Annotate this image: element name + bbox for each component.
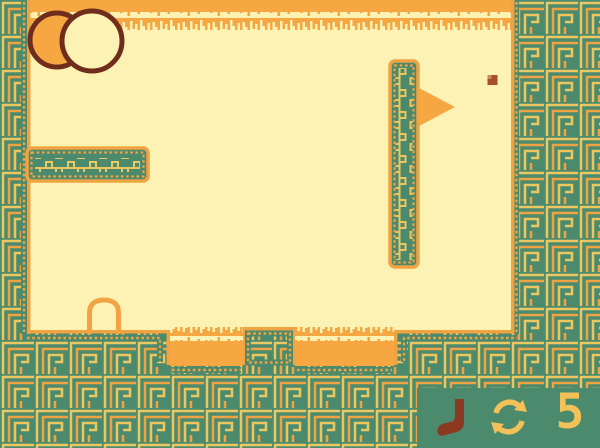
cream-circle (62, 11, 122, 71)
grass-patch-left (170, 327, 243, 366)
border-left (0, 0, 31, 448)
border-right (511, 0, 600, 390)
grass-patch-right (295, 327, 394, 366)
level-canvas[interactable] (0, 0, 600, 448)
overlapping-circles (30, 11, 122, 71)
golf-ball[interactable] (488, 75, 498, 85)
game-screen: 5 (0, 0, 600, 448)
left-platform (27, 148, 148, 181)
stroke-counter: 5 (549, 386, 591, 438)
flag-wall (390, 61, 418, 267)
